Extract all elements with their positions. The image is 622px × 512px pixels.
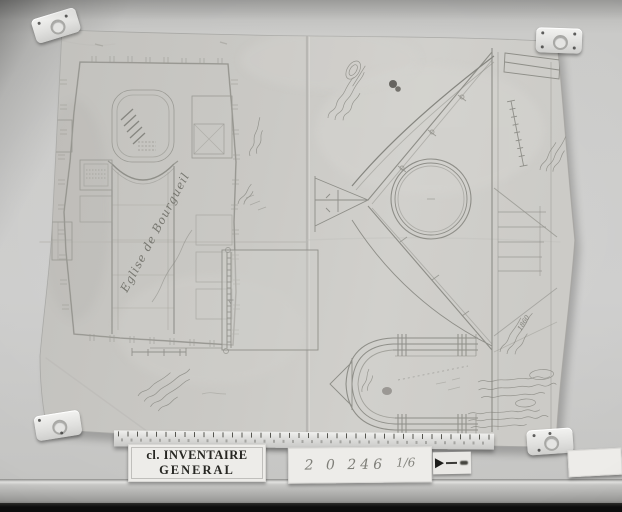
inventory-label-card: cl. INVENTAIRE GENERAL bbox=[128, 444, 266, 482]
arrow-marker-tag bbox=[433, 452, 471, 475]
inventory-label-line1: cl. INVENTAIRE bbox=[146, 448, 247, 463]
clip-knob bbox=[553, 34, 569, 50]
paper-clip-fastener bbox=[536, 27, 583, 54]
right-arrow-icon bbox=[435, 458, 444, 468]
inventory-label-frame: cl. INVENTAIRE GENERAL bbox=[131, 447, 263, 479]
reference-number-card: 2 0 246 1/6 bbox=[288, 446, 432, 484]
clip-knob bbox=[544, 435, 560, 451]
clip-knob bbox=[49, 17, 68, 36]
baseboard bbox=[0, 503, 622, 512]
archive-photo: Eglise de Bourgueil bbox=[0, 0, 622, 512]
blank-card bbox=[567, 448, 622, 478]
inventory-label-line2: GENERAL bbox=[159, 463, 235, 478]
reference-fraction: 1/6 bbox=[396, 455, 415, 469]
arrow-label-smudge bbox=[460, 461, 468, 465]
reference-number: 2 0 246 bbox=[305, 457, 387, 474]
arrow-tail bbox=[446, 462, 457, 464]
